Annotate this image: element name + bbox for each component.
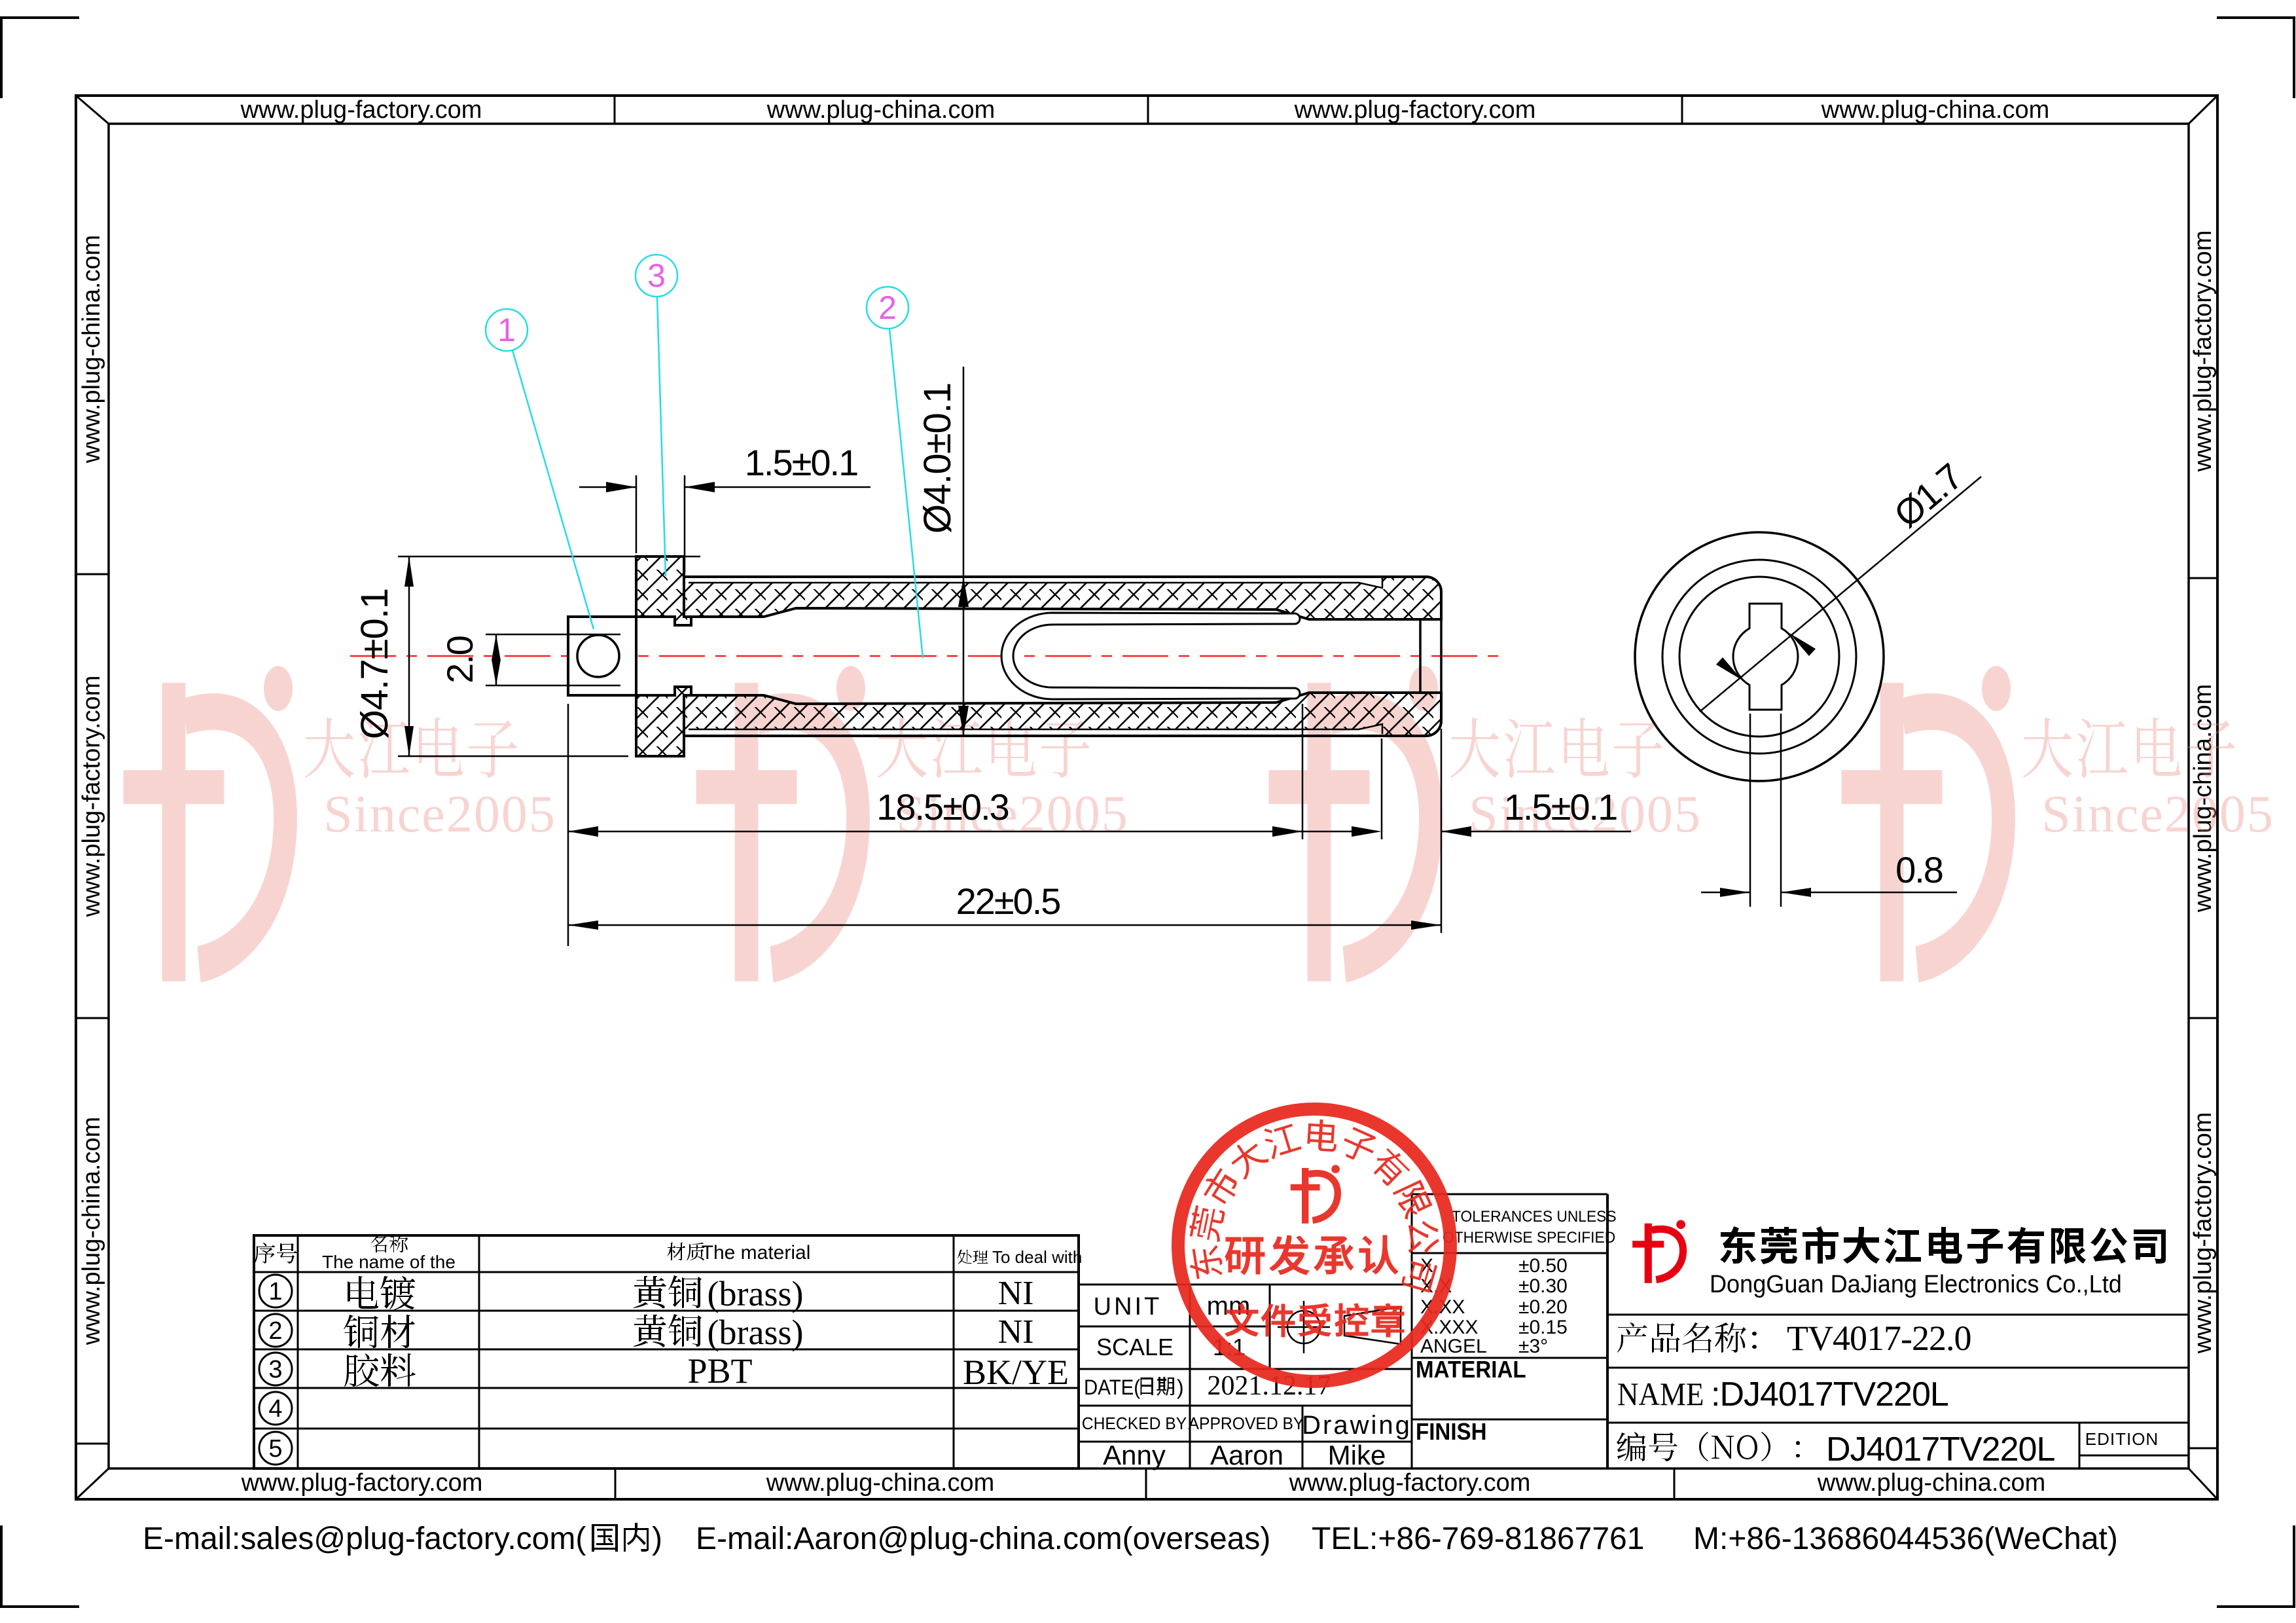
svg-text:3: 3 [268, 1356, 282, 1383]
svg-text:): ) [652, 1522, 662, 1556]
svg-text:DongGuan DaJiang Electronics C: DongGuan DaJiang Electronics Co.,Ltd [1710, 1269, 2122, 1298]
svg-text:The material: The material [702, 1242, 811, 1264]
svg-text:www.plug-china.com: www.plug-china.com [1821, 96, 2049, 124]
svg-text:SCALE: SCALE [1096, 1334, 1174, 1360]
svg-text:www.plug-factory.com: www.plug-factory.com [2189, 230, 2217, 473]
svg-text:Anny: Anny [1103, 1440, 1166, 1470]
svg-text:www.plug-china.com: www.plug-china.com [1817, 1469, 2045, 1497]
svg-text:DJ4017TV220L: DJ4017TV220L [1826, 1431, 2054, 1468]
svg-text:1.5±0.1: 1.5±0.1 [745, 442, 857, 483]
svg-text:TOLERANCES UNLESS: TOLERANCES UNLESS [1452, 1207, 1617, 1225]
svg-text:E-mail:Aaron@plug-china.com(ov: E-mail:Aaron@plug-china.com(overseas) [696, 1522, 1270, 1556]
svg-text:PBT: PBT [687, 1351, 752, 1391]
svg-text:BK/YE: BK/YE [963, 1353, 1069, 1392]
svg-text:Aaron: Aaron [1210, 1440, 1283, 1470]
svg-text:NAME: NAME [1617, 1377, 1704, 1413]
svg-text:MATERIAL: MATERIAL [1416, 1357, 1526, 1383]
svg-text:www.plug-china.com: www.plug-china.com [78, 1117, 105, 1345]
svg-text:±0.30: ±0.30 [1518, 1275, 1568, 1297]
svg-text:FINISH: FINISH [1416, 1419, 1487, 1446]
svg-text::DJ4017TV220L: :DJ4017TV220L [1711, 1376, 1948, 1413]
svg-text:Mike: Mike [1328, 1440, 1386, 1470]
svg-text:www.plug-factory.com: www.plug-factory.com [1289, 1469, 1531, 1497]
svg-text:OTHERWISE SPECIFIED: OTHERWISE SPECIFIED [1443, 1228, 1615, 1246]
svg-text:www.plug-china.com: www.plug-china.com [78, 235, 105, 464]
svg-text:Since2005: Since2005 [2041, 786, 2274, 843]
svg-text:www.plug-factory.com: www.plug-factory.com [2189, 1112, 2217, 1355]
svg-text:1.5±0.1: 1.5±0.1 [1504, 786, 1617, 828]
svg-text:www.plug-factory.com: www.plug-factory.com [78, 676, 105, 918]
svg-text:Ø4.7±0.1: Ø4.7±0.1 [353, 589, 396, 739]
svg-text:www.plug-factory.com: www.plug-factory.com [240, 96, 482, 124]
svg-text:TEL:+86-769-81867761: TEL:+86-769-81867761 [1312, 1522, 1644, 1556]
svg-text:www.plug-china.com: www.plug-china.com [766, 1469, 994, 1497]
svg-text:(brass): (brass) [708, 1274, 804, 1313]
svg-text:±0.50: ±0.50 [1518, 1255, 1568, 1277]
svg-text:0.8: 0.8 [1895, 849, 1943, 890]
svg-text:±3°: ±3° [1518, 1336, 1548, 1357]
svg-text:TV4017-22.0: TV4017-22.0 [1787, 1319, 1971, 1358]
svg-text:NI: NI [998, 1313, 1034, 1351]
svg-text:±0.20: ±0.20 [1518, 1296, 1568, 1318]
svg-text:CHECKED BY: CHECKED BY [1082, 1414, 1187, 1433]
svg-text:Since2005: Since2005 [323, 786, 556, 843]
svg-text:To deal with: To deal with [992, 1247, 1082, 1267]
svg-text:22±0.5: 22±0.5 [956, 881, 1060, 922]
svg-text:2: 2 [268, 1317, 282, 1345]
svg-text:1: 1 [497, 312, 516, 348]
svg-text:3: 3 [647, 257, 666, 294]
svg-text:The name of the: The name of the [322, 1252, 456, 1272]
svg-text:5: 5 [268, 1435, 282, 1463]
svg-text:Drawing: Drawing [1302, 1411, 1412, 1440]
svg-text:Ø4.0±0.1: Ø4.0±0.1 [916, 383, 959, 534]
svg-text:): ) [1177, 1376, 1184, 1399]
svg-text:M:+86-13686044536(WeChat): M:+86-13686044536(WeChat) [1693, 1522, 2118, 1556]
svg-text:www.plug-factory.com: www.plug-factory.com [241, 1469, 483, 1497]
svg-text:www.plug-factory.com: www.plug-factory.com [1294, 96, 1536, 124]
svg-text:www.plug-china.com: www.plug-china.com [766, 96, 995, 124]
svg-text:DATE(: DATE( [1084, 1376, 1141, 1399]
svg-text:UNIT: UNIT [1094, 1293, 1162, 1321]
svg-text:(brass): (brass) [708, 1313, 804, 1352]
svg-text:2: 2 [878, 289, 897, 326]
svg-text:E-mail:sales@plug-factory.com(: E-mail:sales@plug-factory.com( [143, 1522, 586, 1556]
svg-text:1: 1 [268, 1278, 282, 1305]
svg-text:ANGEL: ANGEL [1420, 1336, 1487, 1357]
svg-text:APPROVED BY: APPROVED BY [1189, 1414, 1304, 1433]
svg-text:4: 4 [268, 1395, 282, 1423]
svg-text:18.5±0.3: 18.5±0.3 [876, 786, 1009, 828]
svg-text:NI: NI [998, 1275, 1034, 1312]
svg-text:2.0: 2.0 [439, 636, 480, 684]
svg-text:EDITION: EDITION [2085, 1429, 2159, 1449]
